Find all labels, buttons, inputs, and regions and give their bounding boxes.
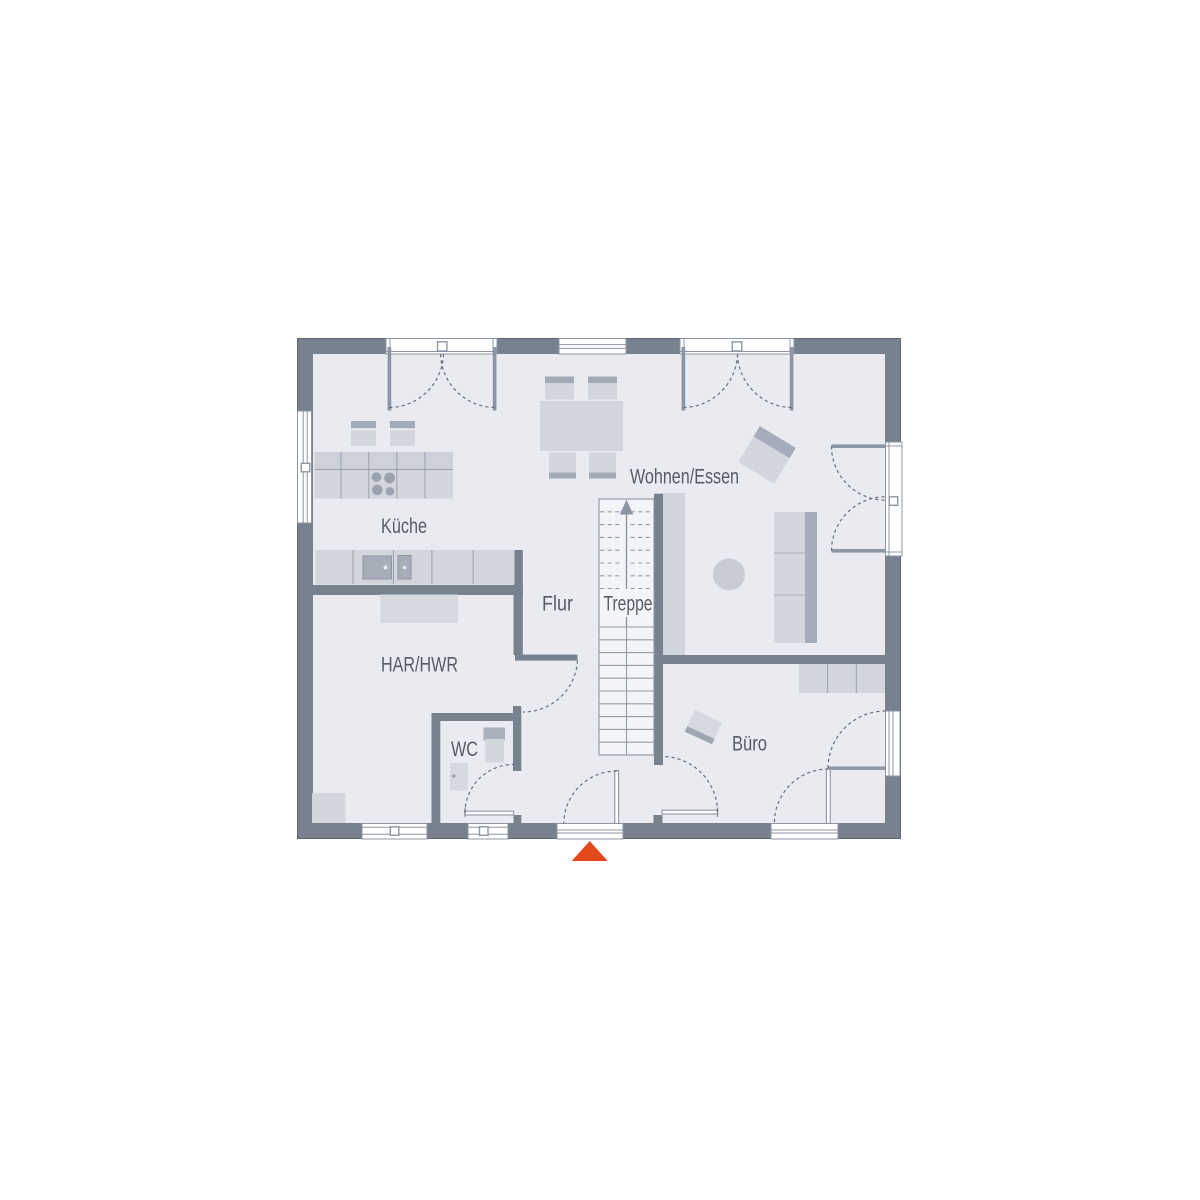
svg-text:Flur: Flur [542,593,573,616]
svg-text:WC: WC [451,738,478,761]
svg-text:Treppe: Treppe [604,593,653,616]
svg-text:Büro: Büro [732,733,767,756]
svg-text:HAR/HWR: HAR/HWR [381,654,458,677]
svg-text:Küche: Küche [381,515,427,538]
svg-text:Wohnen/Essen: Wohnen/Essen [630,466,739,489]
